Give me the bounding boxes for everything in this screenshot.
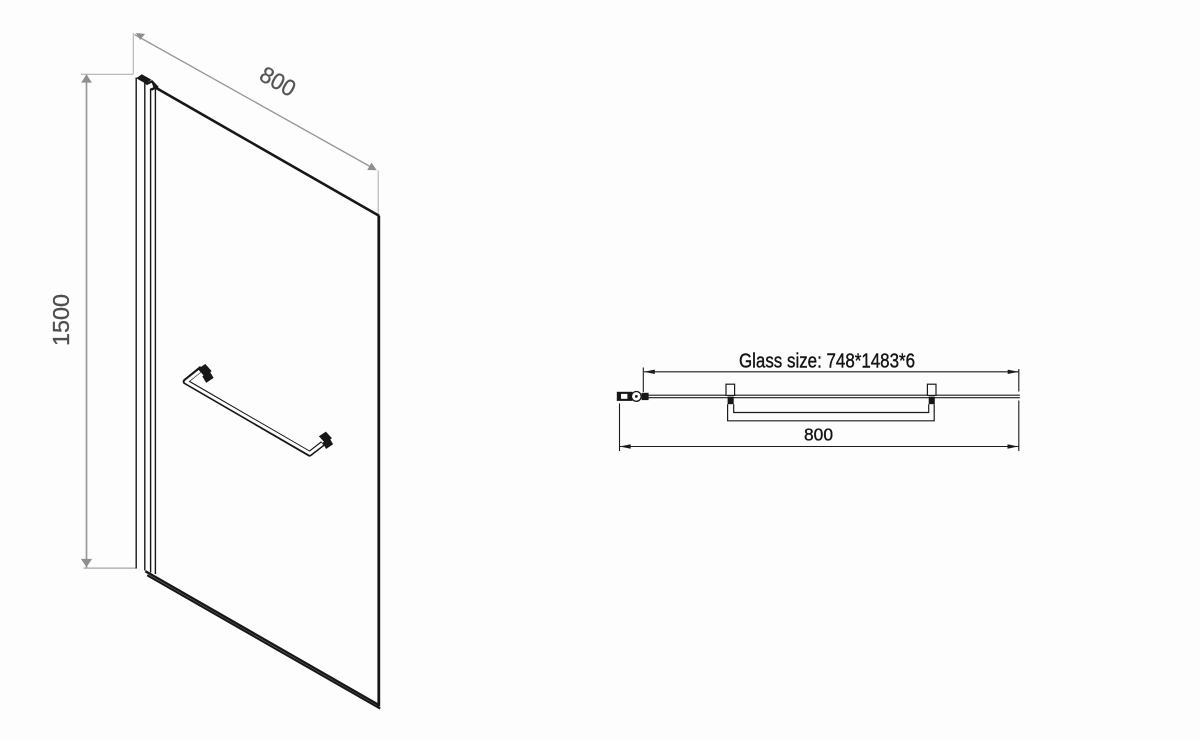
svg-text:800: 800 [804, 424, 833, 444]
svg-text:Glass size: 748*1483*6: Glass size: 748*1483*6 [739, 350, 915, 373]
svg-text:1500: 1500 [48, 294, 74, 346]
